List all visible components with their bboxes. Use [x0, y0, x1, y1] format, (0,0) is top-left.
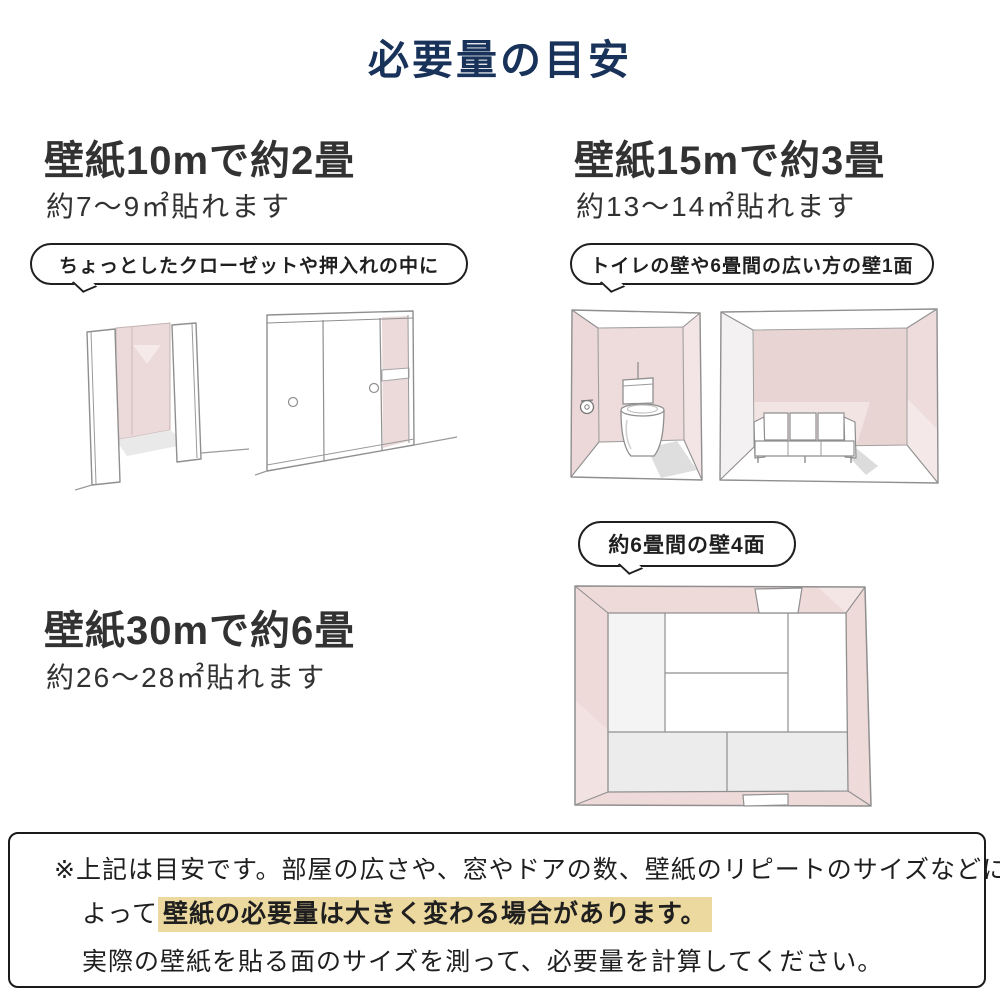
- section-30m-subheading: 約26〜28㎡貼れます: [46, 656, 326, 696]
- section-30m-callout-text: 約6畳間の壁4面: [608, 529, 765, 559]
- section-15m-callout-bubble: トイレの壁や6畳間の広い方の壁1面: [570, 243, 934, 285]
- toilet-paper-holder: [581, 400, 594, 414]
- closet-interior-wall: [382, 316, 409, 448]
- section-15m-subheading: 約13〜14㎡貼れます: [576, 185, 856, 225]
- section-10m-subheading: 約7〜9㎡貼れます: [46, 185, 291, 225]
- room-door-bottom: [743, 794, 788, 806]
- section-15m-heading: 壁紙15mで約3畳: [574, 128, 885, 186]
- wallpaper-quantity-guide: 必要量の目安 壁紙10mで約2畳 約7〜9㎡貼れます ちょっとしたクローゼットや…: [0, 0, 1000, 1000]
- note-line-1: ※上記は目安です。部屋の広さや、窓やドアの数、壁紙のリピートのサイズなどに: [54, 852, 1000, 888]
- note-line-2-prefix: よって: [82, 900, 158, 928]
- disclaimer-note-box: ※上記は目安です。部屋の広さや、窓やドアの数、壁紙のリピートのサイズなどに よっ…: [8, 832, 986, 988]
- sofa: [754, 413, 856, 463]
- section-10m-heading: 壁紙10mで約2畳: [44, 128, 355, 186]
- room-door-top: [755, 588, 802, 613]
- sliding-closet-illustration: [255, 298, 490, 528]
- note-line-2-highlight: 壁紙の必要量は大きく変わる場合があります。: [158, 897, 712, 932]
- section-10m-callout-text: ちょっとしたクローゼットや押入れの中に: [59, 251, 439, 278]
- bubble-tail: [618, 558, 643, 574]
- sofa-room-illustration: [718, 298, 946, 506]
- section-10m-callout-bubble: ちょっとしたクローゼットや押入れの中に: [30, 243, 468, 285]
- bubble-tail: [72, 276, 97, 292]
- page-title: 必要量の目安: [0, 26, 1000, 86]
- tatami-room-top-view-illustration: [568, 580, 876, 812]
- section-30m-callout-bubble: 約6畳間の壁4面: [578, 521, 796, 567]
- bubble-tail: [600, 276, 625, 292]
- section-30m-heading: 壁紙30mで約6畳: [44, 598, 355, 656]
- toilet-room-illustration: [565, 298, 715, 510]
- note-line-2: よって壁紙の必要量は大きく変わる場合があります。: [82, 896, 712, 932]
- note-line-3: 実際の壁紙を貼る面のサイズを測って、必要量を計算してください。: [82, 944, 883, 980]
- section-15m-callout-text: トイレの壁や6畳間の広い方の壁1面: [590, 251, 913, 278]
